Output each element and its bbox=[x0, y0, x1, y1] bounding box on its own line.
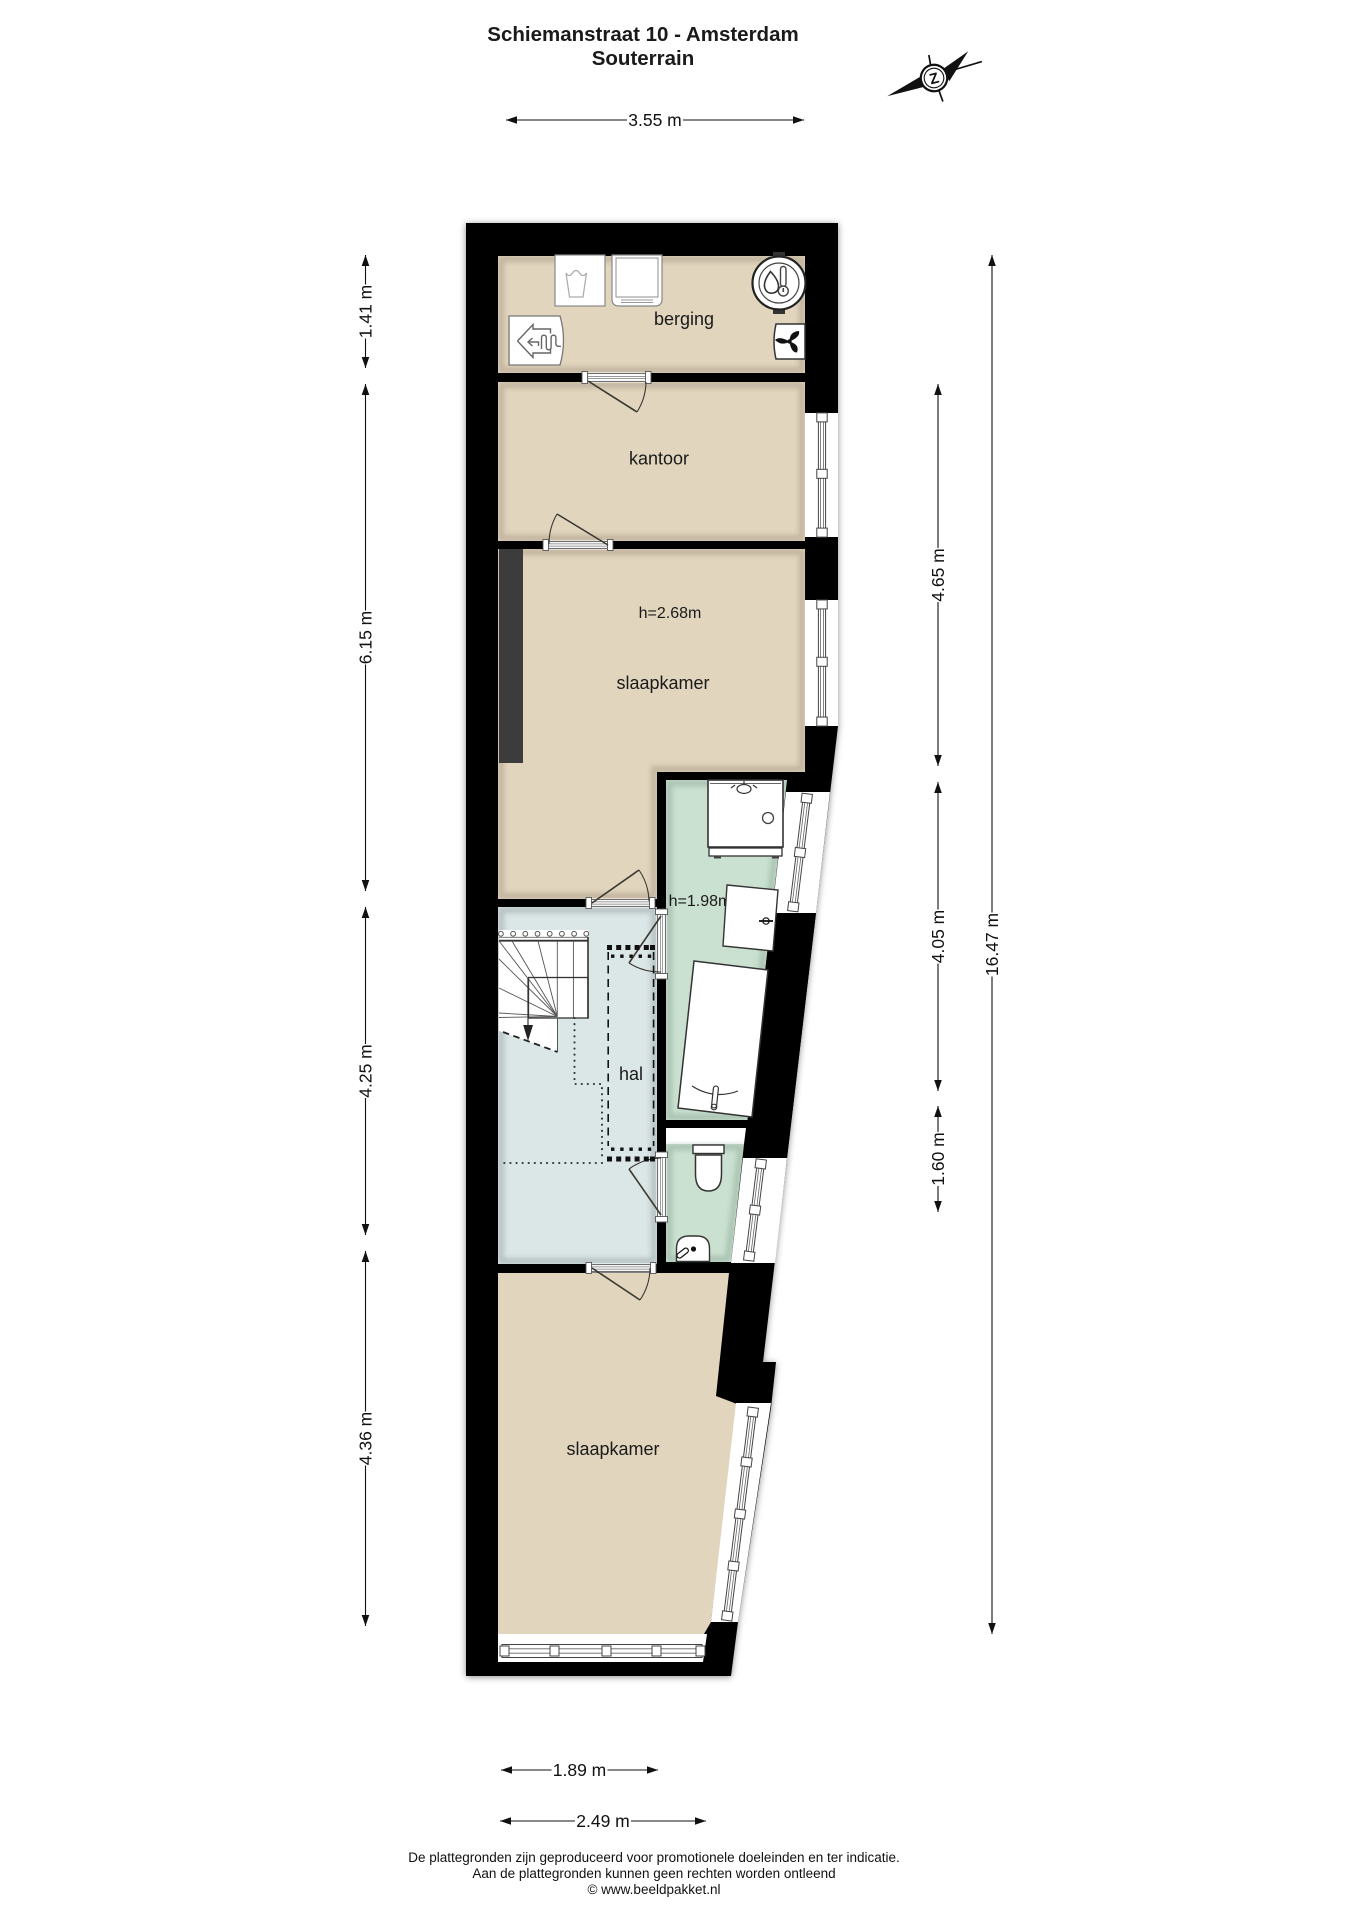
svg-text:slaapkamer: slaapkamer bbox=[566, 1439, 659, 1459]
svg-text:h=1.98m: h=1.98m bbox=[669, 893, 732, 910]
svg-text:Aan de plattegronden kunnen ge: Aan de plattegronden kunnen geen rechten… bbox=[472, 1866, 835, 1881]
svg-text:h=2.68m: h=2.68m bbox=[639, 605, 702, 622]
svg-text:Souterrain: Souterrain bbox=[592, 47, 695, 70]
svg-text:4.05 m: 4.05 m bbox=[928, 910, 948, 964]
svg-text:16.47 m: 16.47 m bbox=[982, 913, 1002, 976]
svg-text:4.25 m: 4.25 m bbox=[356, 1044, 376, 1098]
svg-text:1.60 m: 1.60 m bbox=[928, 1132, 948, 1186]
svg-text:1.89 m: 1.89 m bbox=[553, 1760, 607, 1780]
svg-text:Schiemanstraat 10 - Amsterdam: Schiemanstraat 10 - Amsterdam bbox=[487, 23, 798, 46]
svg-text:3.55 m: 3.55 m bbox=[628, 110, 682, 130]
svg-text:slaapkamer: slaapkamer bbox=[616, 673, 709, 693]
svg-text:De plattegronden zijn geproduc: De plattegronden zijn geproduceerd voor … bbox=[408, 1850, 900, 1865]
svg-text:4.65 m: 4.65 m bbox=[928, 548, 948, 602]
svg-text:© www.beeldpakket.nl: © www.beeldpakket.nl bbox=[587, 1882, 720, 1897]
svg-text:4.36 m: 4.36 m bbox=[356, 1412, 376, 1466]
svg-text:6.15 m: 6.15 m bbox=[356, 611, 376, 665]
svg-text:hal: hal bbox=[619, 1064, 643, 1084]
svg-text:kantoor: kantoor bbox=[629, 449, 689, 469]
svg-text:2.49 m: 2.49 m bbox=[576, 1811, 630, 1831]
svg-text:berging: berging bbox=[654, 309, 714, 329]
svg-text:1.41 m: 1.41 m bbox=[356, 285, 376, 339]
